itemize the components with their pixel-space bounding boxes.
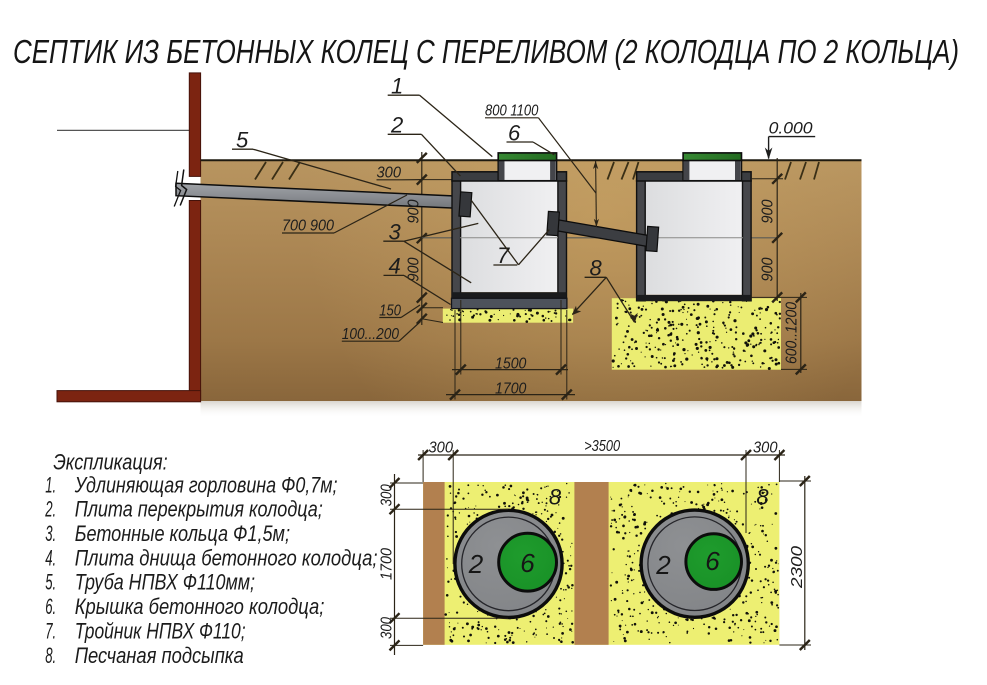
svg-text:2: 2 <box>468 549 484 579</box>
svg-text:6: 6 <box>520 548 535 578</box>
svg-text:1500: 1500 <box>495 356 526 373</box>
svg-text:300: 300 <box>429 439 454 456</box>
svg-text:900: 900 <box>760 199 777 223</box>
svg-text:800 1100: 800 1100 <box>485 102 538 119</box>
svg-text:3.: 3. <box>45 521 56 546</box>
svg-text:4.: 4. <box>45 545 56 570</box>
svg-text:2.: 2. <box>45 497 57 522</box>
svg-text:Тройник НПВХ Ф110;: Тройник НПВХ Ф110; <box>75 618 246 643</box>
svg-text:0.000: 0.000 <box>769 119 814 138</box>
svg-text:Плита перекрытия колодца;: Плита перекрытия колодца; <box>75 497 323 522</box>
svg-text:2: 2 <box>655 550 671 580</box>
svg-text:Бетонные кольца Ф1,5м;: Бетонные кольца Ф1,5м; <box>75 521 290 546</box>
svg-text:СЕПТИК ИЗ БЕТОННЫХ КОЛЕЦ С ПЕР: СЕПТИК ИЗ БЕТОННЫХ КОЛЕЦ С ПЕРЕЛИВОМ (2 … <box>13 33 959 70</box>
svg-text:300: 300 <box>377 165 402 182</box>
svg-text:700 900: 700 900 <box>282 218 334 235</box>
svg-text:5.: 5. <box>45 570 56 595</box>
svg-text:Экспликация:: Экспликация: <box>53 450 168 475</box>
svg-text:150: 150 <box>379 302 401 319</box>
svg-text:8: 8 <box>549 485 562 510</box>
svg-text:6.: 6. <box>45 594 56 619</box>
svg-text:300: 300 <box>753 439 778 456</box>
svg-text:8: 8 <box>756 485 769 510</box>
svg-text:Крышка бетонного колодца;: Крышка бетонного колодца; <box>75 594 325 619</box>
svg-text:6: 6 <box>705 546 720 576</box>
svg-text:1.: 1. <box>45 472 56 497</box>
svg-text:100...200: 100...200 <box>342 326 400 343</box>
svg-text:Труба НПВХ Ф110мм;: Труба НПВХ Ф110мм; <box>75 570 255 595</box>
svg-text:1700: 1700 <box>379 548 396 580</box>
svg-text:900: 900 <box>760 257 777 281</box>
svg-text:600..1200: 600..1200 <box>784 302 801 364</box>
svg-text:1700: 1700 <box>495 381 526 398</box>
svg-text:Плита днища бетонного колодца;: Плита днища бетонного колодца; <box>75 545 378 570</box>
svg-text:7.: 7. <box>45 618 56 643</box>
svg-text:900: 900 <box>406 199 423 223</box>
svg-text:300: 300 <box>379 617 396 639</box>
svg-text:8.: 8. <box>45 643 56 668</box>
svg-text:2300: 2300 <box>789 546 806 590</box>
svg-text:Удлиняющая горловина Ф0,7м;: Удлиняющая горловина Ф0,7м; <box>74 472 338 497</box>
svg-text:Песчаная подсыпка: Песчаная подсыпка <box>75 643 244 668</box>
svg-text:300: 300 <box>379 484 396 506</box>
svg-text:>3500: >3500 <box>584 438 620 455</box>
